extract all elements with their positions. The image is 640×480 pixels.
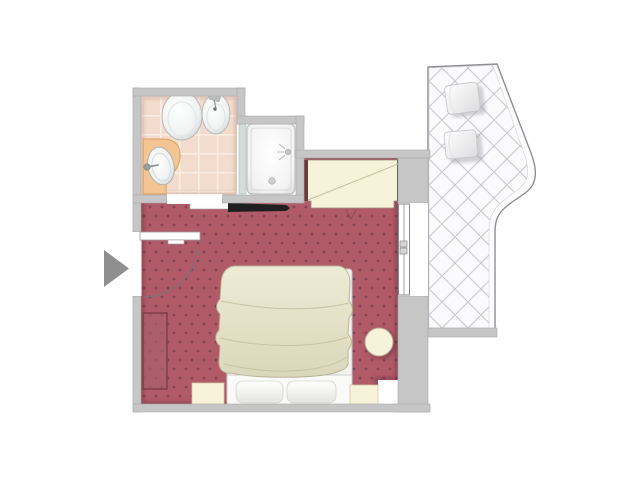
wall-terrace-bottom — [428, 328, 497, 337]
toilet — [162, 92, 202, 140]
glass-door-handle-2 — [400, 248, 407, 254]
bathroom-door-opening — [167, 194, 222, 204]
entry-door-leaf — [140, 232, 200, 240]
wall-shower-right — [296, 116, 304, 203]
wall-bathroom-top — [133, 88, 245, 96]
wall-bottom — [133, 404, 430, 412]
terrace-glass-door — [398, 203, 428, 296]
wall-wardrobe-top — [296, 150, 430, 158]
shower — [239, 124, 295, 194]
basin-faucet — [144, 164, 150, 170]
wall-right-stub-bottom — [398, 296, 428, 412]
bidet — [202, 93, 230, 134]
wardrobe-body — [303, 160, 402, 208]
double-bed — [216, 266, 353, 405]
pillow-right — [287, 381, 336, 403]
bathroom — [141, 92, 237, 195]
nightstand-left — [192, 383, 224, 405]
shower-drain — [269, 178, 275, 184]
floor-plan — [0, 0, 640, 480]
wall-left-lower — [133, 296, 141, 412]
glass-door-handle-1 — [400, 241, 407, 247]
bidet-drain — [213, 107, 217, 111]
terrace-cushion-1 — [444, 81, 486, 119]
radiator — [143, 313, 167, 389]
wall-left-upper — [133, 88, 141, 232]
terrace-cushion-2 — [444, 129, 484, 164]
bed-blanket — [216, 266, 353, 377]
entry-opening — [133, 232, 142, 296]
floor-plan-canvas — [0, 0, 640, 480]
table-top — [365, 328, 393, 356]
nightstand-right — [350, 385, 378, 405]
wall-shower-top — [237, 116, 304, 124]
wall-right-stub-top — [398, 158, 428, 203]
wall-bathroom-bottom-left — [133, 195, 167, 203]
pillow-left — [236, 381, 283, 403]
wall-bathroom-bottom-right — [222, 195, 304, 203]
shower-glass-panel — [239, 124, 246, 194]
entry-door-handle — [168, 240, 184, 244]
